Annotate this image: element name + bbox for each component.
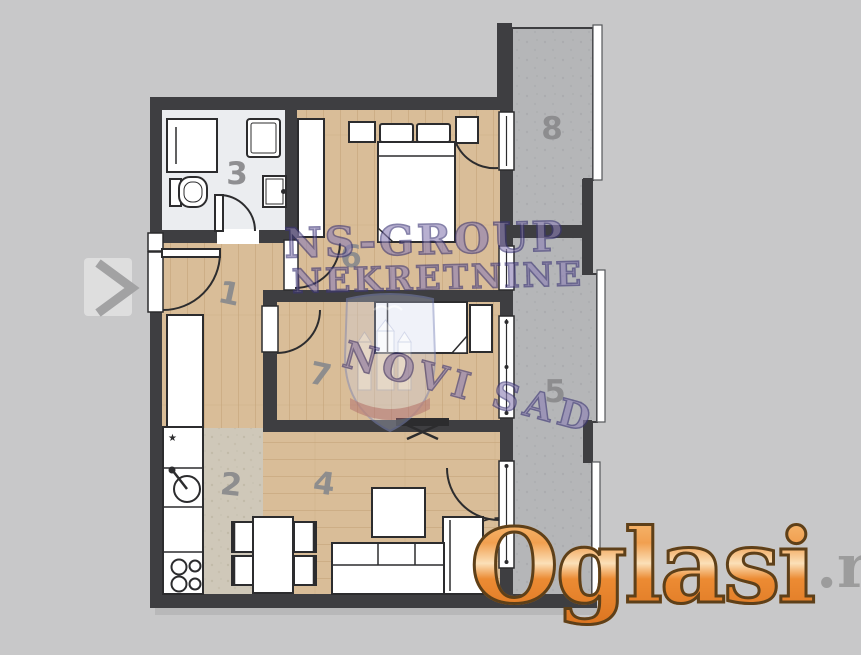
room-label-2: 2: [218, 466, 243, 504]
nightstand: [456, 117, 478, 143]
dining-table: [253, 517, 293, 593]
terrace-8-railing: [593, 25, 602, 180]
toilet: [170, 177, 207, 207]
bathroom-sink: [263, 176, 286, 207]
wall-terrace-right-bar: [583, 178, 593, 274]
wall-terrace8-left: [497, 23, 512, 97]
window-frame-dot: [505, 320, 509, 324]
room-label-3: 3: [226, 156, 248, 192]
window-frame-dot: [505, 365, 509, 369]
entrance-door-leaf: [162, 249, 220, 257]
nightstand: [349, 122, 375, 142]
gallery-next-arrow[interactable]: [84, 258, 132, 316]
room-label-8: 8: [541, 111, 563, 147]
dining-chair: [232, 556, 254, 585]
listing-photo-floor-plan: ★: [0, 0, 861, 655]
fridge-star-icon: ★: [168, 433, 177, 444]
wall-top: [150, 97, 500, 110]
bedroom7-door-leaf: [262, 306, 278, 352]
washing-machine: [247, 119, 280, 157]
nightstand: [470, 305, 492, 352]
wall-left: [150, 97, 162, 608]
dining-chair: [232, 522, 254, 552]
oglasi-logo-tld: .rs: [816, 532, 861, 602]
hallway-wardrobe: [167, 315, 203, 427]
bathtub: [167, 119, 217, 172]
dining-chair: [294, 556, 316, 585]
window-frame-dot: [505, 464, 509, 468]
entrance-window: [148, 233, 163, 251]
bathroom-door-leaf: [215, 195, 223, 231]
oglasi-logo-brand: Oglasi: [470, 507, 813, 627]
oglasi-logo: Oglasi.rs: [470, 516, 861, 618]
wall-bottom: [150, 594, 513, 608]
entrance-door-opening: [148, 252, 163, 312]
watermark-line2: NEKRETNINE: [291, 254, 584, 301]
dining-chair: [294, 522, 316, 552]
coffee-table: [372, 488, 425, 537]
